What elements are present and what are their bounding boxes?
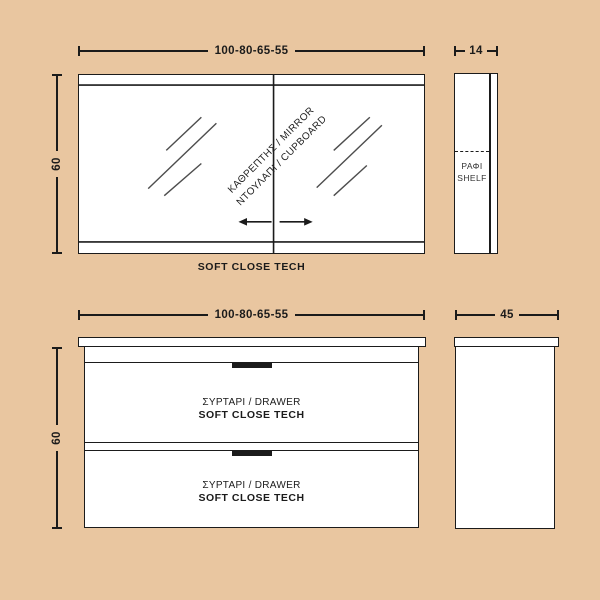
drawer1-label-line2: SOFT CLOSE TECH [85,409,418,421]
dimension-width-mirror-cabinet: 100-80-65-55 [78,45,425,57]
dimension-line [487,50,496,52]
dimension-line [80,314,208,316]
dimension-line [456,50,465,52]
dimension-line [56,451,58,527]
drawer2-label: ΣΥΡΤΑΡΙ / DRAWER SOFT CLOSE TECH [85,480,418,504]
drawer1-bottom-line [85,442,418,444]
shelf-label-english: SHELF [455,172,489,184]
dimension-tick [557,310,559,320]
mirror-cabinet-front-view: ΚΑΘΡΕΠΤΗΣ / MIRROR ΝΤΟΥΛΑΠΙ / CUPBOARD [78,74,425,254]
vanity-body-front-view: ΣΥΡΤΑΡΙ / DRAWER SOFT CLOSE TECH ΣΥΡΤΑΡΙ… [84,347,419,528]
vanity-countertop-side [454,337,559,347]
dimension-height-mirror-cabinet: 60 [51,74,63,254]
drawer1-label: ΣΥΡΤΑΡΙ / DRAWER SOFT CLOSE TECH [85,397,418,421]
dimension-tick [423,46,425,56]
dimension-label-width: 100-80-65-55 [208,309,296,321]
dimension-depth-vanity: 45 [455,309,559,321]
dimension-tick [52,252,62,254]
dimension-tick [423,310,425,320]
drawer2-handle [232,450,272,457]
dimension-line [56,76,58,151]
drawer1-label-line1: ΣΥΡΤΑΡΙ / DRAWER [85,397,418,409]
dimension-label-depth: 45 [495,309,519,321]
dimension-line [295,314,423,316]
dimension-width-vanity: 100-80-65-55 [78,309,425,321]
vanity-body-side-view [455,347,555,529]
dimension-label-width: 100-80-65-55 [208,45,296,57]
dimension-tick [52,527,62,529]
dimension-line [295,50,423,52]
dimension-tick [496,46,498,56]
mirror-door-depth-line [489,74,491,253]
drawer2-label-line1: ΣΥΡΤΑΡΙ / DRAWER [85,480,418,492]
dimension-height-vanity: 60 [51,347,63,529]
dimension-line [519,314,557,316]
vanity-countertop-front [78,337,426,347]
mirror-cabinet-side-view: ΡΑΦΙ SHELF [454,73,498,254]
dimension-line [56,177,58,252]
dimension-label-height: 60 [51,157,63,171]
dimension-label-height: 60 [51,431,63,445]
shelf-label-greek: ΡΑΦΙ [455,160,489,172]
shelf-dashed-line [455,151,489,152]
drawer1-handle [232,362,272,369]
drawer2-label-line2: SOFT CLOSE TECH [85,492,418,504]
shelf-label: ΡΑΦΙ SHELF [455,160,489,184]
mirror-cabinet-caption: SOFT CLOSE TECH [78,261,425,273]
dimension-depth-mirror-cabinet: 14 [454,45,498,57]
dimension-line [80,50,208,52]
dimension-line [457,314,495,316]
dimension-line [56,349,58,425]
dimension-label-depth: 14 [465,45,487,57]
furniture-technical-drawing: 100-80-65-55 60 [0,0,600,600]
